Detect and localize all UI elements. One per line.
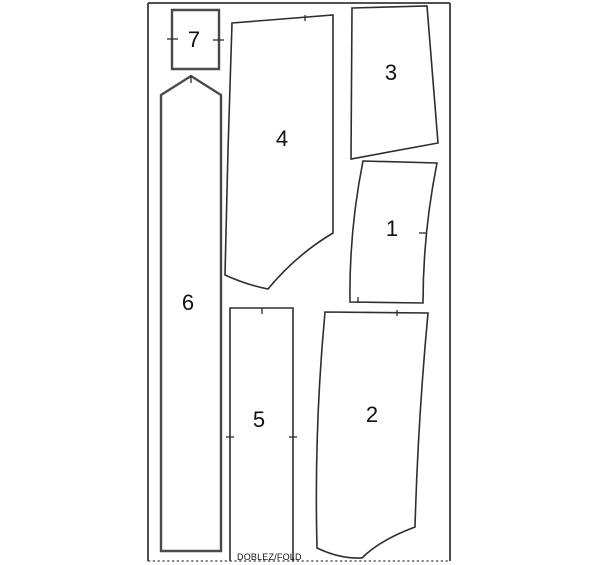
pattern-layout-drawing: 1234567DOBLEZ/FOLD xyxy=(0,0,600,565)
pattern-piece-5-label: 5 xyxy=(253,407,265,432)
pattern-piece-2-outline xyxy=(316,312,428,558)
pattern-piece-1-label: 1 xyxy=(386,216,398,241)
pattern-piece-5-outline xyxy=(230,308,293,561)
pattern-piece-4-outline xyxy=(225,15,333,289)
pattern-piece-3-label: 3 xyxy=(385,60,397,85)
fold-line-label: DOBLEZ/FOLD xyxy=(237,552,302,562)
pattern-piece-7-label: 7 xyxy=(188,27,200,52)
pattern-piece-4-label: 4 xyxy=(276,126,288,151)
pattern-piece-2-label: 2 xyxy=(366,402,378,427)
pattern-piece-6-label: 6 xyxy=(182,290,194,315)
pattern-sheet-page: 1234567DOBLEZ/FOLD xyxy=(0,0,600,565)
